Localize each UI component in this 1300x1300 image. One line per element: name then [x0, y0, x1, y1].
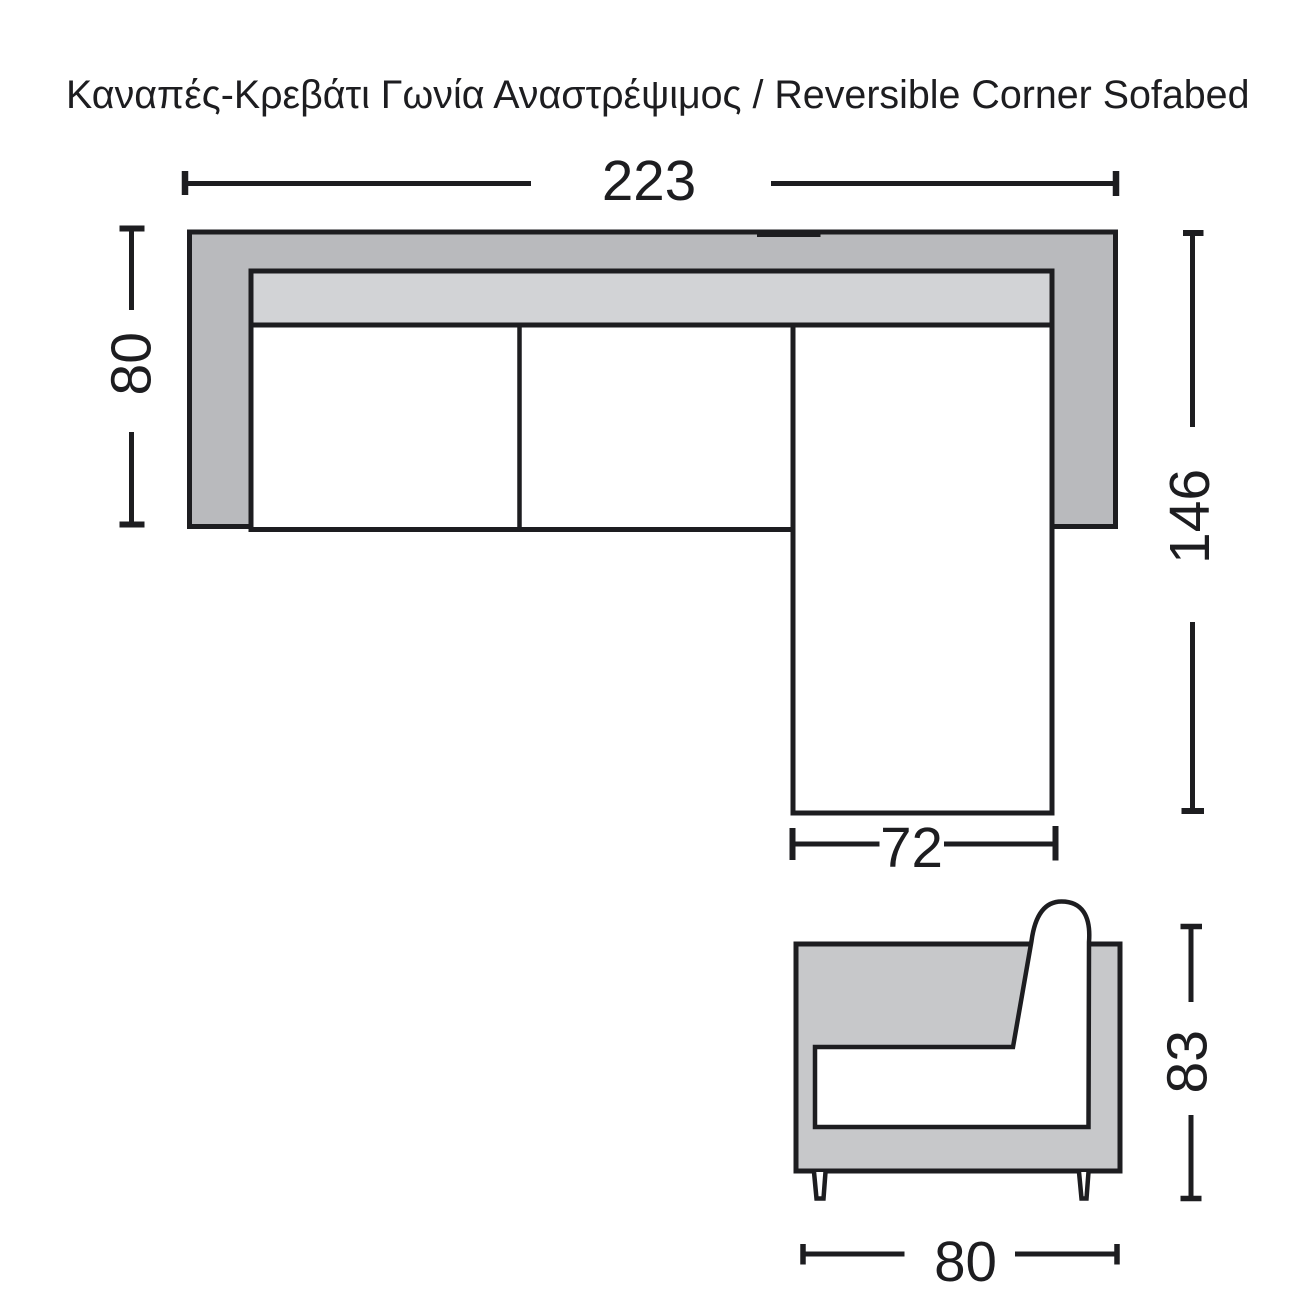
svg-text:83: 83 — [1156, 1030, 1220, 1093]
svg-text:223: 223 — [602, 149, 696, 212]
svg-text:80: 80 — [934, 1230, 997, 1293]
svg-text:72: 72 — [880, 816, 943, 879]
svg-text:146: 146 — [1158, 469, 1222, 564]
svg-text:80: 80 — [100, 332, 164, 395]
svg-text:Καναπές-Κρεβάτι Γωνία Αναστρέψ: Καναπές-Κρεβάτι Γωνία Αναστρέψιμος / Rev… — [66, 73, 1250, 117]
